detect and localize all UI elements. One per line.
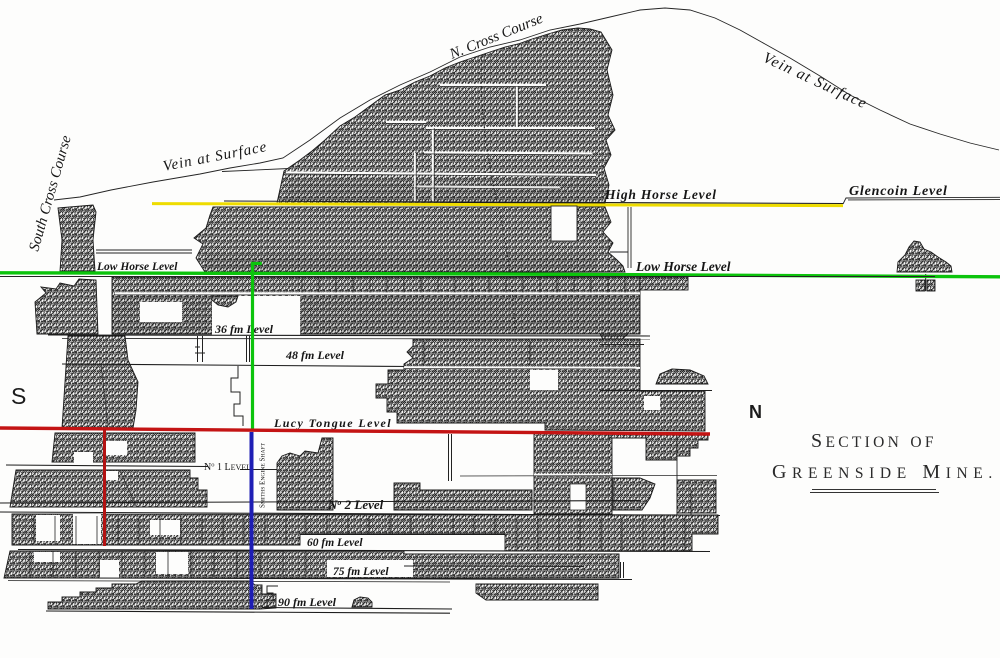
svg-text:SECTION OF: SECTION OF — [811, 430, 937, 452]
svg-text:75 fm Level: 75 fm Level — [333, 566, 389, 578]
svg-text:No 2 Level: No 2 Level — [327, 497, 384, 512]
svg-text:N: N — [749, 402, 762, 422]
svg-text:High Horse Level: High Horse Level — [604, 187, 717, 202]
svg-text:Lucy Tongue Level: Lucy Tongue Level — [273, 416, 392, 430]
svg-text:S: S — [11, 383, 26, 409]
svg-text:48 fm Level: 48 fm Level — [285, 348, 345, 362]
svg-text:Glencoin Level: Glencoin Level — [849, 184, 948, 199]
svg-text:No 1 LEVEL: No 1 LEVEL — [204, 462, 251, 474]
svg-text:Low Horse Level: Low Horse Level — [635, 259, 731, 274]
svg-text:60 fm Level: 60 fm Level — [307, 537, 363, 549]
svg-text:SMITHS ENGINE SHAFT: SMITHS ENGINE SHAFT — [259, 442, 267, 508]
svg-text:GREENSIDE MINE.: GREENSIDE MINE. — [772, 461, 998, 483]
svg-text:36 fm Level: 36 fm Level — [214, 322, 274, 336]
svg-text:90 fm Level: 90 fm Level — [278, 595, 337, 609]
svg-text:Low Horse Level: Low Horse Level — [96, 261, 178, 273]
